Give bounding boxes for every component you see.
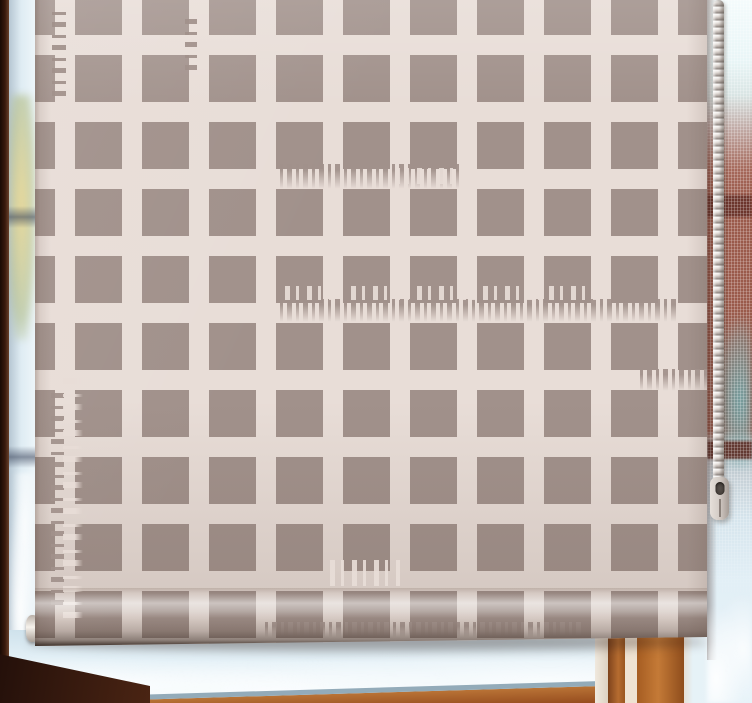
distress-mark	[395, 168, 455, 184]
fabric-shading	[35, 0, 707, 646]
distress-mark	[63, 378, 83, 618]
frost-bottom-right	[707, 583, 752, 703]
chain-connector	[710, 477, 729, 520]
distress-mark	[330, 560, 400, 586]
distress-mark	[280, 299, 680, 323]
window-scene	[0, 0, 752, 703]
blind-bottom-roll	[35, 588, 707, 646]
distress-mark	[185, 12, 197, 70]
muntin-shadow-upper	[9, 206, 36, 228]
frame-post-highlight	[684, 637, 693, 703]
connector-hole	[715, 482, 724, 495]
connector-seam	[719, 499, 721, 517]
roller-blind	[35, 0, 707, 646]
distress-mark	[640, 369, 707, 392]
blind-pull-chain	[713, 0, 724, 481]
muntin-shadow-lower	[9, 446, 36, 468]
distress-mark	[52, 4, 66, 96]
distress-mark	[285, 286, 615, 300]
window-frame-left	[0, 0, 9, 703]
frosted-glass-left	[9, 0, 36, 703]
